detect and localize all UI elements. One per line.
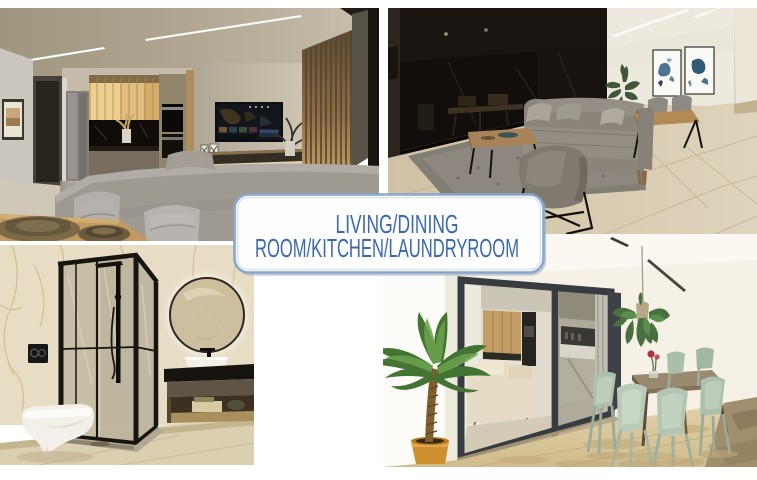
svg-text:ROOM/KITCHEN/LAUNDRYROOM: ROOM/KITCHEN/LAUNDRYROOM bbox=[255, 233, 519, 263]
